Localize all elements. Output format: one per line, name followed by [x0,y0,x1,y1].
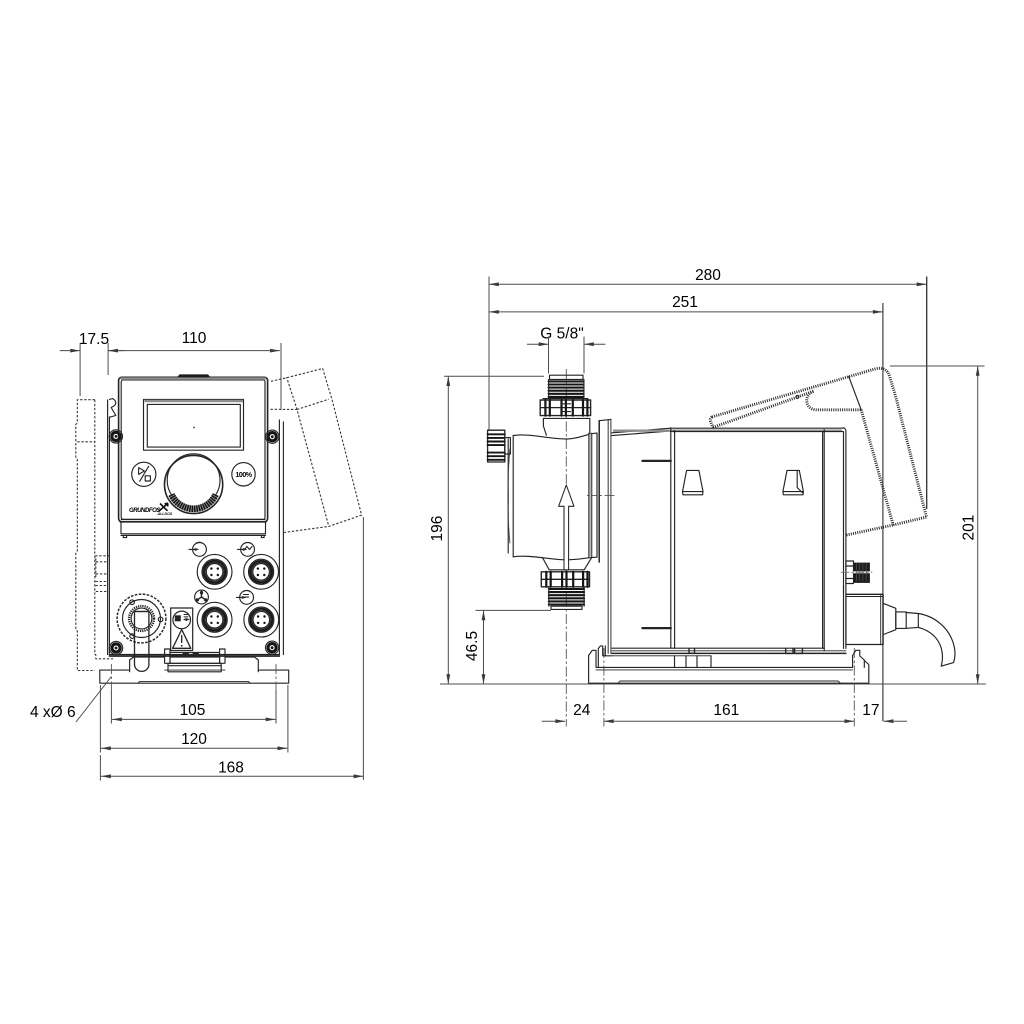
svg-text:105: 105 [180,702,206,719]
svg-text:201: 201 [961,515,978,541]
svg-text:G 5/8": G 5/8" [540,326,583,343]
svg-text:4 xØ 6: 4 xØ 6 [30,704,76,721]
svg-text:110: 110 [182,330,207,347]
svg-text:GRUNDFOS: GRUNDFOS [129,507,160,514]
svg-text:280: 280 [695,267,721,284]
svg-text:ALLDOS: ALLDOS [157,512,173,516]
svg-text:46.5: 46.5 [464,631,481,661]
svg-text:251: 251 [672,294,698,311]
svg-text:17.5: 17.5 [79,331,109,348]
svg-text:17: 17 [862,702,879,719]
svg-text:120: 120 [181,731,207,748]
svg-text:24: 24 [573,702,591,719]
svg-text:196: 196 [429,516,446,542]
svg-text:161: 161 [713,702,739,719]
svg-text:168: 168 [218,760,244,777]
svg-text:100%: 100% [235,472,252,479]
